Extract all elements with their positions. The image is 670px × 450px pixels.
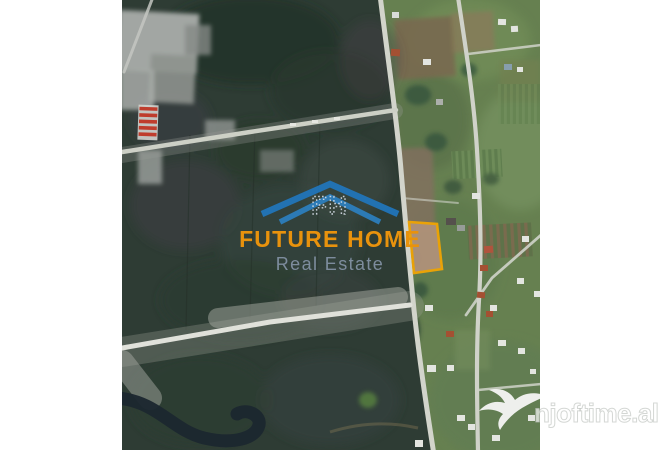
listing-image: FH FUTURE HOME Real Estate njoftime.al [0, 0, 670, 450]
satellite-map: FH FUTURE HOME Real Estate [0, 0, 670, 450]
fh-monogram: FH [311, 192, 348, 220]
real-estate-subtitle: Real Estate [276, 254, 384, 274]
njoftime-watermark: njoftime.al [534, 398, 659, 429]
future-home-title: FUTURE HOME [239, 226, 421, 252]
